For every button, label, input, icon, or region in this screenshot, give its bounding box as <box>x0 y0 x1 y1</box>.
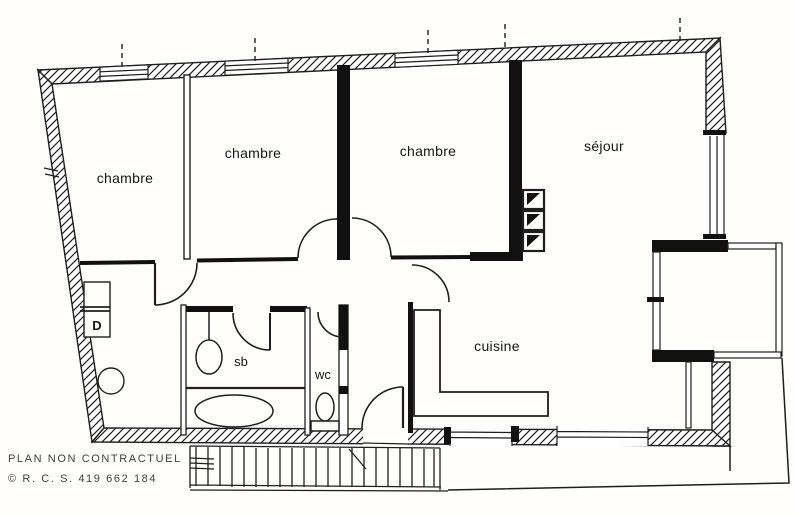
room-label-chambre-right: chambre <box>400 143 457 159</box>
window-tick <box>703 130 726 135</box>
room-label-sejour: séjour <box>584 138 624 154</box>
door-sb <box>233 313 270 350</box>
wc-east-wall-mark <box>339 386 348 394</box>
sb-north-wall <box>186 306 233 312</box>
door-chambre-middle <box>298 219 337 258</box>
door-chambre-left <box>155 263 197 305</box>
door-cuisine <box>412 265 449 302</box>
bathtub <box>195 395 273 427</box>
wc-east-wall-black <box>339 305 348 350</box>
exterior-wall-right-top <box>706 38 726 133</box>
sejour-east-window <box>703 130 726 239</box>
room-label-chambre-middle: chambre <box>225 145 282 161</box>
room-labels: chambre chambre chambre séjour cuisine s… <box>92 138 624 382</box>
cuisine-west-wall <box>408 302 413 433</box>
railing-stair-lines <box>190 458 214 469</box>
bathroom-fixtures <box>186 312 305 427</box>
wall-chambre3-sejour <box>509 60 522 258</box>
sb-north-wall <box>270 306 307 312</box>
room-label-wc: wc <box>314 367 331 382</box>
sink <box>196 340 222 374</box>
toilet <box>311 393 339 431</box>
window-tick <box>703 234 726 239</box>
window-chambre-middle <box>225 58 288 75</box>
window-chambre-left <box>100 65 148 81</box>
wall-chambre2-chambre3 <box>337 65 350 260</box>
stool-circle <box>98 368 124 394</box>
exterior-wall-left <box>38 70 104 442</box>
hall-north-wall-thick <box>470 252 523 261</box>
room-label-sb: sb <box>234 354 248 369</box>
balcony-south-rail <box>714 352 781 358</box>
room-label-chambre-left: chambre <box>97 170 154 186</box>
balcony-north-wall <box>652 240 728 252</box>
balcony-south-railing <box>190 446 448 491</box>
window-sejour-south <box>557 426 648 446</box>
interior-walls <box>80 60 714 435</box>
floor-plan-canvas: chambre chambre chambre séjour cuisine s… <box>0 0 794 515</box>
hall-north-wall <box>80 257 472 263</box>
sejour-wall-units <box>523 190 544 251</box>
exterior-walls <box>38 38 730 446</box>
sejour-south-wall <box>652 350 714 362</box>
sejour-south-frame <box>686 362 691 428</box>
door-chambre-right <box>352 218 391 257</box>
window-chambre-right <box>395 50 458 67</box>
kitchen-counter <box>414 310 548 416</box>
door-balcony <box>362 387 403 428</box>
railing-bars <box>196 447 434 487</box>
wall-chambre1-chambre2 <box>184 75 190 259</box>
terrace-outline <box>448 358 789 490</box>
floor-plan-page: chambre chambre chambre séjour cuisine s… <box>0 0 794 515</box>
footer: PLAN NON CONTRACTUEL © R. C. S. 419 662 … <box>8 453 182 485</box>
balcony-east <box>647 240 782 358</box>
bottom-openings <box>363 425 648 447</box>
footer-disclaimer: PLAN NON CONTRACTUEL <box>8 453 182 465</box>
balcony-east-rail <box>776 243 782 356</box>
room-label-cuisine: cuisine <box>474 338 520 354</box>
sb-west-wall <box>181 305 186 435</box>
balcony-glazing-tick <box>647 297 664 302</box>
closet-label-d: D <box>92 318 101 333</box>
window-cuisine-south <box>444 426 519 446</box>
doors <box>155 218 449 428</box>
balcony-top-rail <box>728 243 776 249</box>
footer-rcs: © R. C. S. 419 662 184 <box>8 473 157 485</box>
wall-sb-wc <box>305 308 310 435</box>
